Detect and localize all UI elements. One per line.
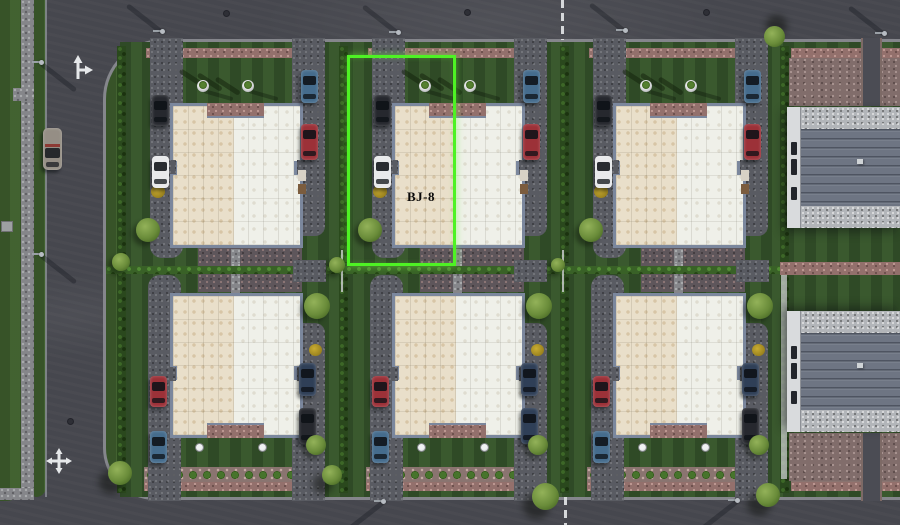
street-lamp (39, 252, 44, 257)
house-roof-left-unit (173, 296, 234, 435)
house-roof (395, 106, 522, 245)
plot-plot-bottom-2[interactable] (342, 267, 564, 497)
roof-ribbed-section (801, 333, 900, 410)
car-rear-window (152, 398, 165, 403)
car-windshield (525, 76, 538, 85)
street-tree (532, 483, 559, 510)
plant-sprig (466, 81, 474, 89)
yellow-bush (531, 344, 544, 356)
car-driveway-left (595, 156, 612, 188)
street-tree (329, 257, 345, 273)
car-rear-window (154, 117, 167, 122)
car-windshield (301, 369, 314, 378)
warehouse-building (787, 107, 900, 228)
vehicle-rear-glass (46, 162, 59, 167)
divider-crossing (514, 260, 547, 282)
notch-garden (650, 423, 707, 438)
ac-unit (298, 184, 306, 194)
notch-garden (207, 103, 264, 118)
rear-gravel-strip (791, 482, 900, 491)
apron (789, 433, 900, 481)
house-roof (173, 296, 300, 435)
car-windshield (303, 130, 316, 139)
rear-patio (420, 248, 524, 266)
house-wall (170, 103, 303, 248)
masterplan-scene: BJ-8 (0, 0, 900, 525)
potted-plant (464, 80, 476, 92)
house-wall (613, 103, 746, 248)
car-driveway-left (374, 156, 391, 188)
potted-plant (242, 80, 254, 92)
street-tree (756, 483, 780, 507)
potted-plant (419, 80, 431, 92)
car-windshield (374, 437, 387, 446)
potted-plant (685, 80, 697, 92)
house-roof (395, 296, 522, 435)
car-windshield (523, 414, 536, 423)
plant-sprig (199, 81, 207, 89)
car-rear-window (374, 398, 387, 403)
car-rear-window (303, 151, 316, 156)
house-roof-left-unit (616, 296, 677, 435)
car-rear-window (152, 454, 165, 459)
lane-line (564, 497, 567, 525)
car-driveway-left (374, 95, 391, 126)
plant-sprig (642, 81, 650, 89)
ac-unit (741, 184, 749, 194)
lamp-shadow (39, 254, 77, 285)
selected-plot-label: BJ-8 (399, 189, 443, 205)
roof-ballast-top (801, 311, 900, 333)
street-tree (764, 26, 785, 47)
house-roof (616, 296, 743, 435)
plant-shadow (248, 89, 278, 101)
garden-tree (526, 293, 552, 319)
ac-unit (520, 184, 528, 194)
road-stub (861, 433, 882, 501)
house-roof (616, 106, 743, 245)
lamp-shadow (347, 501, 385, 525)
car-driveway-right (521, 363, 538, 396)
notch-garden (429, 103, 486, 118)
car-driveway-left (593, 431, 610, 463)
boundary-hedge (117, 46, 126, 263)
roof-vent (791, 187, 797, 200)
manhole-cover (703, 9, 710, 16)
ground-light (417, 443, 426, 452)
plant-shadow (470, 89, 500, 101)
car-rear-window (523, 387, 536, 392)
street-tree (551, 258, 565, 272)
lamp-shadow (701, 500, 739, 525)
car-rear-window (525, 94, 538, 99)
car-rear-window (595, 454, 608, 459)
roof-vent (791, 159, 797, 175)
manhole-cover (223, 10, 230, 17)
garden-tree (528, 435, 548, 455)
roof-vent (791, 391, 797, 404)
ground-light (480, 443, 489, 452)
plot-plot-top-3[interactable] (563, 42, 785, 267)
car-windshield (376, 101, 389, 110)
car-driveway-right (744, 70, 761, 103)
car-driveway-right (301, 124, 318, 160)
street-lamp (160, 29, 165, 34)
middle-divider-gravel (780, 262, 900, 275)
ground-light (258, 443, 267, 452)
street-lamp (396, 30, 401, 35)
vehicle-windshield (45, 148, 60, 158)
road-stub (861, 38, 882, 106)
car-windshield (746, 130, 759, 139)
ground-light (701, 443, 710, 452)
front-patio (198, 274, 302, 292)
notch-garden (429, 423, 486, 438)
house-roof-left-unit (616, 106, 677, 245)
car-rear-window (525, 151, 538, 156)
apron (789, 58, 900, 106)
plant-sprig (421, 81, 429, 89)
car-driveway-right (299, 363, 316, 396)
plant-shadow (691, 89, 721, 101)
house-wall (392, 103, 525, 248)
car-windshield (597, 101, 610, 110)
garden-tree (749, 435, 769, 455)
street-lamp (623, 28, 628, 33)
garden-tree (579, 218, 603, 242)
garden-tree (136, 218, 160, 242)
yellow-bush (752, 344, 765, 356)
car-windshield (374, 382, 387, 391)
car-driveway-right (523, 70, 540, 103)
car-driveway-left (150, 376, 167, 407)
roof-hatch (857, 363, 863, 368)
street-tree (322, 465, 342, 485)
roof-vent (791, 363, 797, 379)
car-driveway-left (595, 95, 612, 126)
car-windshield (595, 437, 608, 446)
car-rear-window (376, 117, 389, 122)
plot-plot-top-1[interactable] (120, 42, 342, 267)
house-roof-left-unit (173, 106, 234, 245)
house-wall (170, 293, 303, 438)
divider-crossing (736, 260, 769, 282)
plot-plot-bottom-1[interactable] (120, 267, 342, 497)
street-lamp (381, 499, 386, 504)
potted-plant (197, 80, 209, 92)
ac-unit (298, 170, 306, 181)
street-tree (112, 253, 130, 271)
car-rear-window (595, 398, 608, 403)
lane-line (561, 0, 564, 40)
boundary-hedge (339, 46, 348, 263)
car-driveway-left (152, 156, 169, 188)
street-lamp (882, 31, 887, 36)
boundary-hedge (560, 46, 569, 263)
car-windshield (154, 101, 167, 110)
street-lamp (735, 498, 740, 503)
car-rear-window (303, 94, 316, 99)
house-wall (613, 293, 746, 438)
car-driveway-left (372, 376, 389, 407)
roof-ballast-bottom (801, 410, 900, 432)
street-lamp (39, 60, 44, 65)
garden-tree (306, 435, 326, 455)
car-rear-window (154, 179, 167, 184)
roof-ballast-top (801, 107, 900, 129)
house-roof-left-unit (395, 296, 456, 435)
road-vehicle (43, 128, 62, 170)
road-marking-straight-right-arrow (70, 55, 94, 81)
car-windshield (152, 382, 165, 391)
car-windshield (744, 414, 757, 423)
ground-light (638, 443, 647, 452)
warehouse-white-strip (787, 311, 801, 432)
divider-crossing (293, 260, 326, 282)
manhole-cover (464, 9, 471, 16)
street-tree (108, 461, 132, 485)
notch-garden (207, 423, 264, 438)
rear-patio (198, 248, 302, 266)
front-patio (641, 274, 745, 292)
garden-tree (304, 293, 330, 319)
car-rear-window (301, 387, 314, 392)
rear-patio (641, 248, 745, 266)
front-gravel-strip (791, 48, 900, 58)
roof-ribbed-section (801, 129, 900, 206)
ac-unit (520, 170, 528, 181)
car-rear-window (376, 179, 389, 184)
vehicle-tail-stripe (45, 144, 60, 147)
car-rear-window (597, 117, 610, 122)
roof-hatch (857, 159, 863, 164)
car-windshield (744, 369, 757, 378)
car-driveway-left (152, 95, 169, 126)
front-patio (420, 274, 524, 292)
plot-plot-top-4[interactable] (783, 42, 900, 267)
car-windshield (523, 369, 536, 378)
car-windshield (303, 76, 316, 85)
garden-tree (358, 218, 382, 242)
house-roof (173, 106, 300, 245)
car-rear-window (744, 387, 757, 392)
warehouse-white-strip (787, 107, 801, 228)
car-driveway-right (744, 124, 761, 160)
car-driveway-right (523, 124, 540, 160)
car-windshield (301, 414, 314, 423)
boundary-hedge (560, 271, 569, 493)
plot-plot-top-2[interactable] (342, 42, 564, 267)
car-rear-window (597, 179, 610, 184)
ac-unit (741, 170, 749, 181)
car-windshield (152, 437, 165, 446)
car-windshield (746, 76, 759, 85)
car-rear-window (746, 151, 759, 156)
plot-plot-bottom-3[interactable] (563, 267, 785, 497)
car-windshield (154, 162, 167, 171)
car-windshield (376, 162, 389, 171)
boundary-hedge (117, 271, 126, 493)
car-driveway-left (372, 431, 389, 463)
car-rear-window (746, 94, 759, 99)
notch-garden (650, 103, 707, 118)
house-roof-left-unit (395, 106, 456, 245)
plant-sprig (244, 81, 252, 89)
car-driveway-left (593, 376, 610, 407)
car-windshield (525, 130, 538, 139)
car-rear-window (374, 454, 387, 459)
plot-plot-bottom-4[interactable] (783, 267, 900, 497)
car-driveway-right (301, 70, 318, 103)
manhole-cover (67, 418, 74, 425)
warehouse-building (787, 311, 900, 432)
car-windshield (595, 382, 608, 391)
boundary-hedge (339, 271, 348, 493)
roof-vent (791, 142, 797, 155)
car-windshield (597, 162, 610, 171)
car-driveway-right (742, 363, 759, 396)
road-marking-cross-arrow (46, 448, 70, 474)
car-driveway-left (150, 431, 167, 463)
boundary-path-line (562, 250, 564, 292)
roof-ballast-bottom (801, 206, 900, 228)
potted-plant (640, 80, 652, 92)
ground-light (195, 443, 204, 452)
garden-tree (747, 293, 773, 319)
roof-vent (791, 346, 797, 359)
yellow-bush (309, 344, 322, 356)
house-wall (392, 293, 525, 438)
plant-sprig (687, 81, 695, 89)
middle-divider-hedge (106, 266, 783, 274)
